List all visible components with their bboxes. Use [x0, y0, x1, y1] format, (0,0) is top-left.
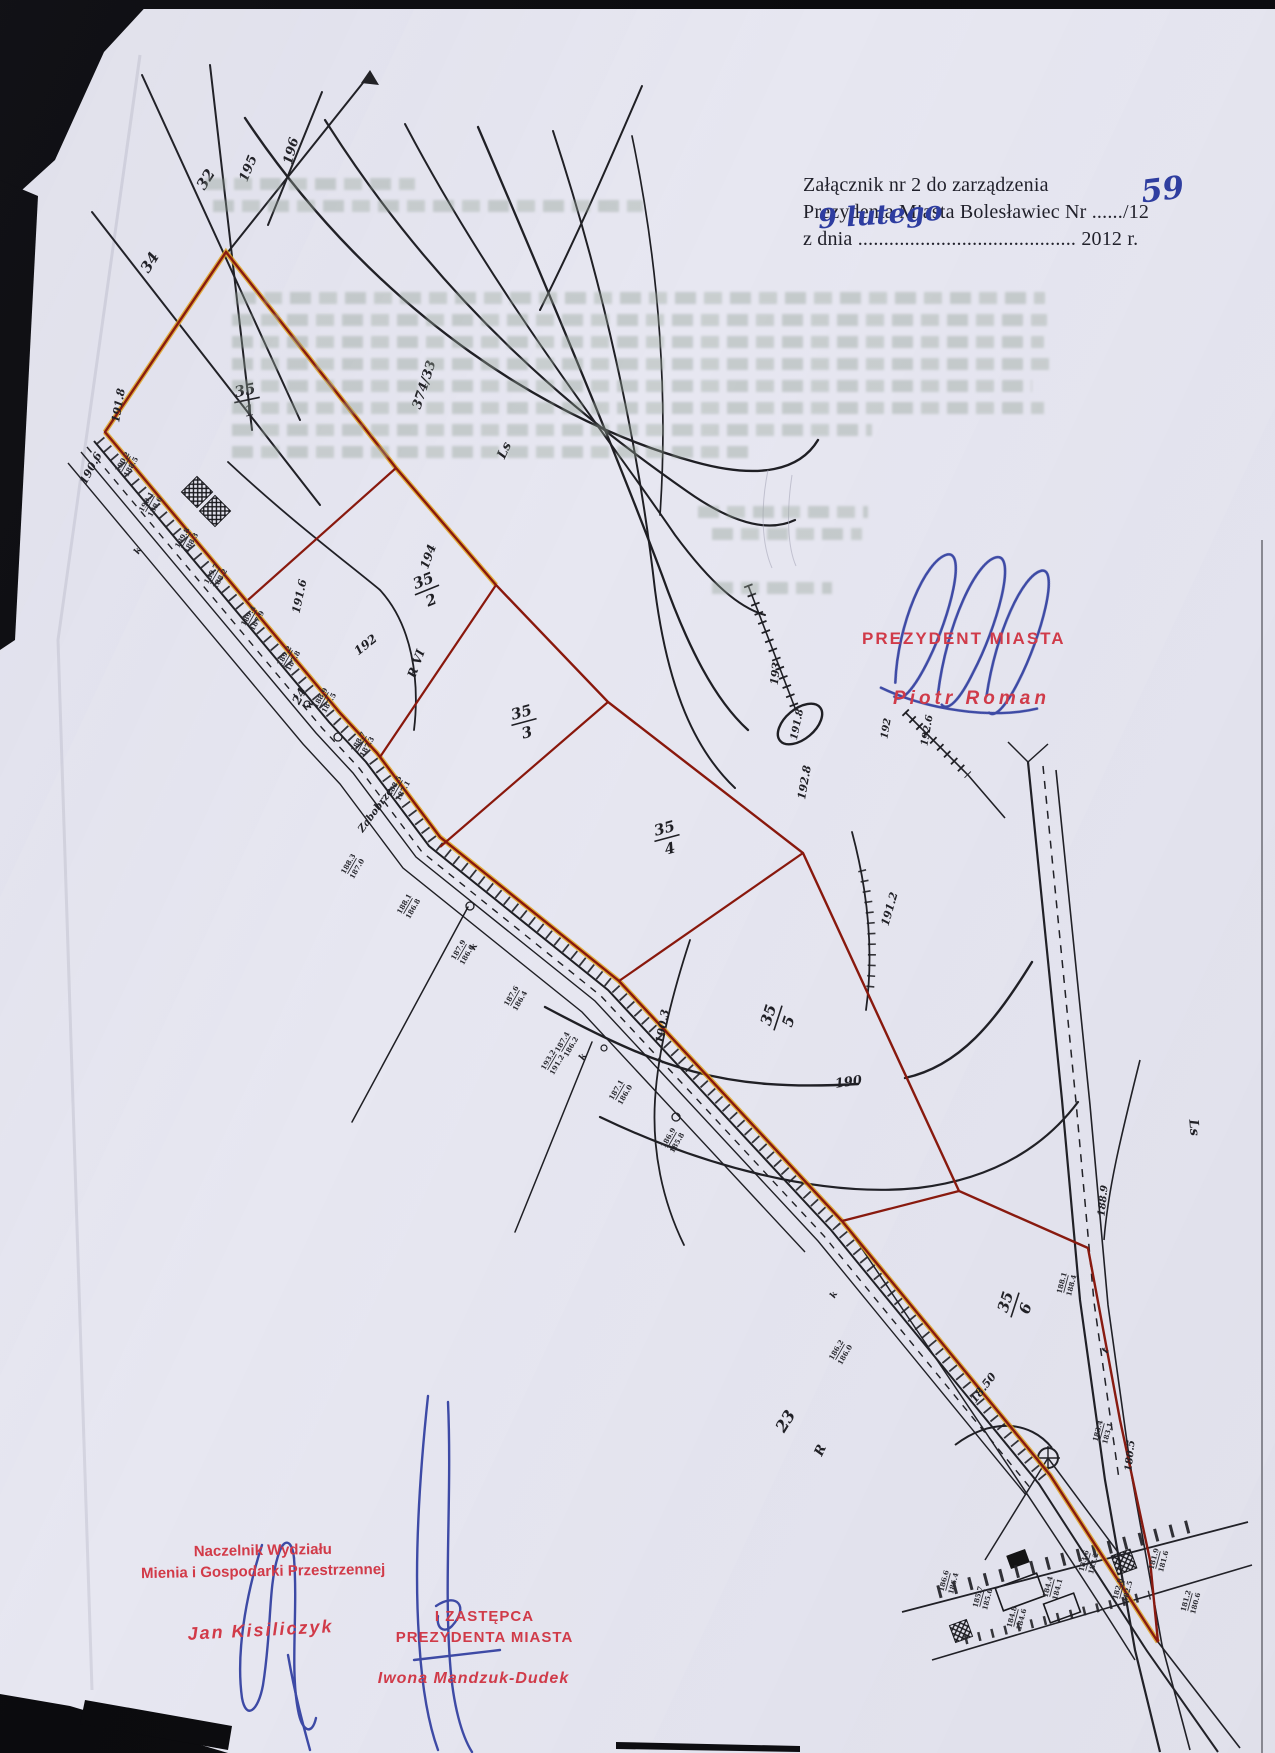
deputy-signature — [414, 1396, 500, 1752]
parcel-number-label: 353 — [507, 700, 542, 744]
deputy-name-stamp: Iwona Mandzuk-Dudek — [356, 1670, 591, 1688]
president-name-stamp: Piotr Roman — [893, 688, 1050, 710]
svg-text:5: 5 — [778, 1014, 798, 1029]
number-dotted-field: ...... — [1092, 201, 1123, 223]
attachment-title: Załącznik nr 2 do zarządzenia — [803, 174, 1049, 197]
map-label: R VI — [404, 647, 428, 680]
president-title-stamp: PREZYDENT MIASTA — [862, 629, 1066, 649]
cadastral-map: 1961953234374/33191.8190.6Ls194191.6192R… — [0, 0, 1275, 1753]
map-label: 191.6 — [290, 578, 310, 615]
map-label: 192 — [879, 717, 893, 740]
elevation-point-label: 189.8188.3 — [173, 526, 200, 555]
map-label: 34 — [137, 249, 163, 276]
parcel-number-label: 355 — [756, 1000, 801, 1037]
map-label: 190 — [834, 1073, 863, 1092]
side-road — [1008, 742, 1190, 1752]
scanned-document-page: 1961953234374/33191.8190.6Ls194191.6192R… — [0, 0, 1275, 1753]
deputy-president-stamp: I ZASTĘPCA PREZYDENTA MIASTA — [382, 1606, 587, 1648]
elevation-point-label: 188.1186.8 — [395, 892, 422, 921]
pencil-marks — [763, 470, 796, 568]
svg-text:2: 2 — [422, 590, 439, 611]
map-label: 23 — [771, 1407, 799, 1437]
parcel-boundary — [105, 252, 1158, 1642]
elevation-point-label: 187.6186.4 — [502, 984, 529, 1013]
map-label: 192.8 — [795, 764, 814, 801]
elevation-point-label: 189.4187.9 — [239, 604, 266, 633]
handwritten-order-number: 59 — [1139, 170, 1186, 211]
map-label: 191.8 — [109, 387, 128, 424]
map-label: 191.2 — [879, 890, 901, 927]
map-label: 192 — [351, 632, 379, 658]
map-label: 193 — [768, 661, 783, 686]
svg-text:4: 4 — [662, 839, 677, 859]
elevation-point-label: 188.3187.0 — [339, 852, 366, 881]
scan-page-edge — [58, 55, 140, 1690]
svg-text:3: 3 — [519, 723, 534, 743]
department-head-stamp: Naczelnik Wydziału Mienia i Gospodarki P… — [118, 1537, 409, 1584]
map-label: 192.6 — [919, 714, 935, 747]
parcel-division-lines — [248, 468, 959, 1221]
parcel-number-label: 354 — [650, 816, 685, 860]
elevation-point-label: 189.2187.8 — [275, 644, 302, 673]
date-suffix: 2012 r. — [1081, 228, 1138, 250]
elevation-point-label: 188.7187.3 — [349, 730, 376, 759]
map-label: Ls — [1185, 1118, 1202, 1137]
map-label: R — [811, 1442, 830, 1459]
parcel-number-label: 352 — [408, 568, 447, 614]
map-label: k — [828, 1290, 840, 1300]
svg-text:6: 6 — [1015, 1300, 1036, 1316]
elevation-point-label: 181.2180.6 — [1178, 1589, 1202, 1615]
elevation-point-label: 183.6183.2 — [1076, 1549, 1100, 1575]
elevation-point-label: 187.1186.0 — [607, 1078, 634, 1107]
map-label: 188.9 — [1096, 1185, 1110, 1217]
scan-black-edges — [0, 0, 1275, 1753]
elevation-point-label: 181.9181.6 — [1146, 1547, 1170, 1573]
elevation-point-label: 188.1188.4 — [1054, 1271, 1078, 1297]
boundary-yellow-line — [105, 252, 1158, 1642]
elevation-point-label: 186.2186.0 — [827, 1338, 854, 1367]
parcel-number-label: 356 — [993, 1287, 1038, 1324]
map-label: 190.3 — [653, 1008, 672, 1045]
map-label: 180.5 — [1123, 1440, 1137, 1472]
contour-arrowhead — [361, 70, 379, 85]
deputy-title-2: PREZYDENTA MIASTA — [382, 1627, 587, 1648]
date-dotted-field: ........................................… — [858, 228, 1076, 250]
map-label: 194 — [417, 542, 439, 570]
svg-text:35: 35 — [410, 568, 436, 593]
elevation-point-label: 189.7188.2 — [202, 562, 229, 591]
deputy-title-1: I ZASTĘPCA — [382, 1606, 587, 1627]
boundary-red-outline — [105, 252, 1158, 1642]
